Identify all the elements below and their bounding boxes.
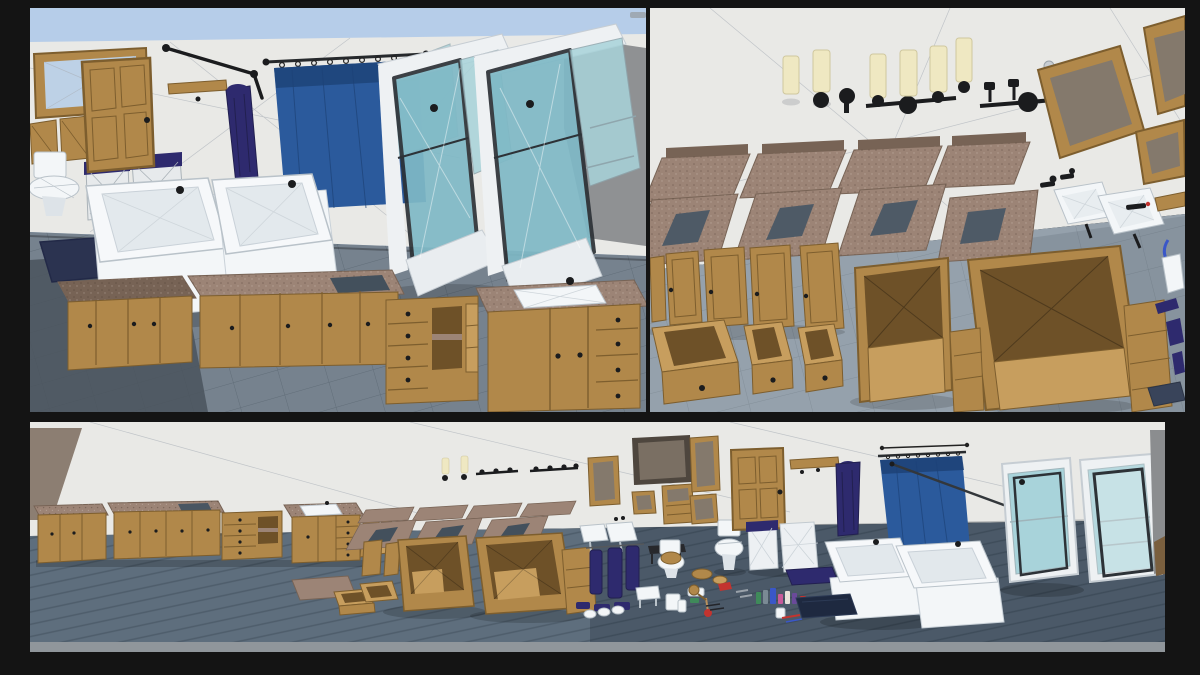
medicine-cabinet — [662, 484, 694, 524]
sconce-shade — [956, 38, 972, 82]
vanity-long — [188, 270, 404, 368]
shower-stall — [1002, 458, 1078, 582]
right-corner-wood — [1154, 536, 1165, 576]
tub-faucet — [288, 180, 296, 188]
panel-bottom — [30, 422, 1165, 652]
panel-top-right — [650, 8, 1185, 412]
shower-stall — [1080, 454, 1162, 582]
vanity-drawers-open-shelf — [386, 296, 478, 404]
hand-mirror — [689, 585, 699, 595]
viewport-collage — [0, 0, 1200, 675]
panel-piece — [362, 540, 382, 576]
wood-tray — [713, 576, 727, 584]
sconce-shade — [783, 56, 799, 94]
showerhead — [1019, 479, 1025, 485]
paper-roll — [612, 606, 624, 614]
shelf-tower — [950, 328, 984, 412]
viewport-watermark — [630, 12, 646, 18]
stall-shadow — [1000, 583, 1084, 597]
paper-roll — [584, 610, 596, 618]
panel-top-left — [30, 8, 646, 412]
panel-piece — [384, 542, 400, 576]
vanity-two-door — [58, 276, 196, 370]
bathrobe — [836, 461, 860, 536]
dark-rug — [796, 594, 857, 618]
vanity-with-sink — [284, 501, 364, 563]
jar — [776, 608, 785, 618]
sink-faucet — [566, 277, 574, 285]
tub-faucet — [176, 186, 184, 194]
vanity-with-sink — [476, 277, 646, 412]
towel-rack — [586, 544, 644, 598]
sconce-base — [813, 92, 829, 108]
side-table — [636, 586, 660, 600]
cabinet-carcasses — [850, 246, 1172, 412]
toilet-brush — [678, 600, 686, 612]
soap-bar — [690, 598, 699, 603]
vanity-drawers-shelf — [222, 511, 282, 560]
showerhead — [430, 104, 438, 112]
wood-tray — [692, 569, 712, 579]
door — [731, 448, 785, 530]
sconce-shade — [813, 50, 830, 92]
door-knob — [144, 117, 150, 123]
door — [82, 58, 154, 172]
showerhead — [526, 100, 534, 108]
fixture-knob — [839, 88, 855, 104]
sink-cutout — [330, 275, 390, 293]
paper-roll — [598, 608, 610, 616]
door-knob — [778, 490, 783, 495]
floor-edge-strip — [30, 642, 1165, 652]
